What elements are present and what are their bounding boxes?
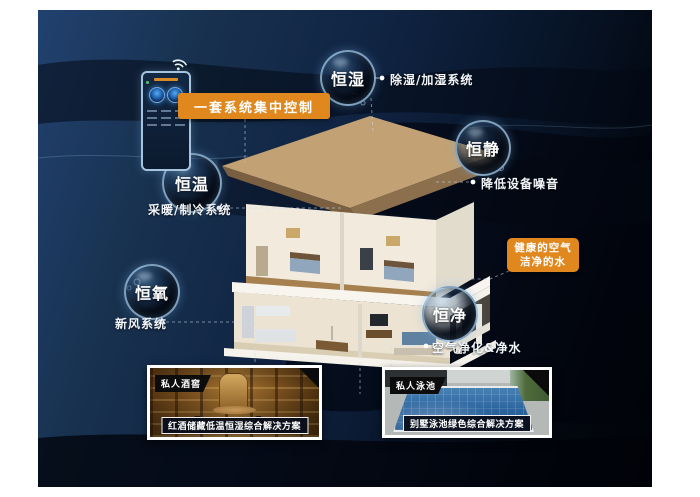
panel-status-dot (146, 81, 149, 84)
wine-cellar-caption: 红酒储藏低温恒湿综合解决方案 (161, 417, 308, 434)
bubble-quiet-label: 恒静 (466, 136, 500, 160)
wine-cellar-tag: 私人酒窖 (155, 375, 211, 392)
corner-ribbon (299, 368, 319, 388)
highlight-line1: 健康的空气 (514, 241, 572, 255)
bubble-humidity-label: 恒湿 (331, 66, 365, 90)
bubble-purity-label: 恒净 (433, 302, 467, 326)
healthy-air-water-box: 健康的空气 洁净的水 (507, 238, 579, 272)
bubble-oxygen: 恒氧 (124, 264, 180, 320)
dark-canvas: 恒湿 恒静 恒温 恒氧 恒净 除湿/加湿系统 降低设备噪音 采暖/制冷系统 新风… (38, 10, 652, 487)
bubble-oxygen-label: 恒氧 (135, 280, 169, 304)
card-swimming-pool: 私人泳池 别墅泳池绿色综合解决方案 (382, 367, 552, 438)
note-humidity-system: 除湿/加湿系统 (390, 71, 473, 88)
bubble-quiet: 恒静 (455, 120, 511, 176)
card-wine-cellar: 私人酒窖 红酒储藏低温恒湿综合解决方案 (147, 365, 322, 440)
wine-tasting-table (213, 406, 257, 414)
swimming-pool-photo: 私人泳池 别墅泳池绿色综合解决方案 (385, 370, 549, 435)
smart-control-panel (141, 71, 191, 171)
pool-tag: 私人泳池 (390, 377, 446, 394)
note-fresh-air-system: 新风系统 (115, 315, 167, 332)
note-hvac-system: 采暖/制冷系统 (148, 201, 231, 218)
panel-header-bar (154, 78, 178, 81)
bubble-purity: 恒净 (422, 286, 478, 342)
pool-caption: 别墅泳池绿色综合解决方案 (403, 415, 531, 432)
pool-terrace (447, 370, 513, 383)
infographic-stage: 恒湿 恒静 恒温 恒氧 恒净 除湿/加湿系统 降低设备噪音 采暖/制冷系统 新风… (0, 0, 700, 497)
temperature-knob (149, 87, 165, 103)
note-noise-reduction: 降低设备噪音 (481, 175, 559, 192)
bubble-temperature-label: 恒温 (175, 171, 209, 195)
highlight-line2: 洁净的水 (520, 255, 566, 269)
central-control-label: 一套系统集中控制 (178, 93, 330, 119)
note-purification-system: 空气净化&净水 (432, 339, 521, 356)
wine-cellar-photo: 私人酒窖 红酒储藏低温恒湿综合解决方案 (150, 368, 319, 437)
